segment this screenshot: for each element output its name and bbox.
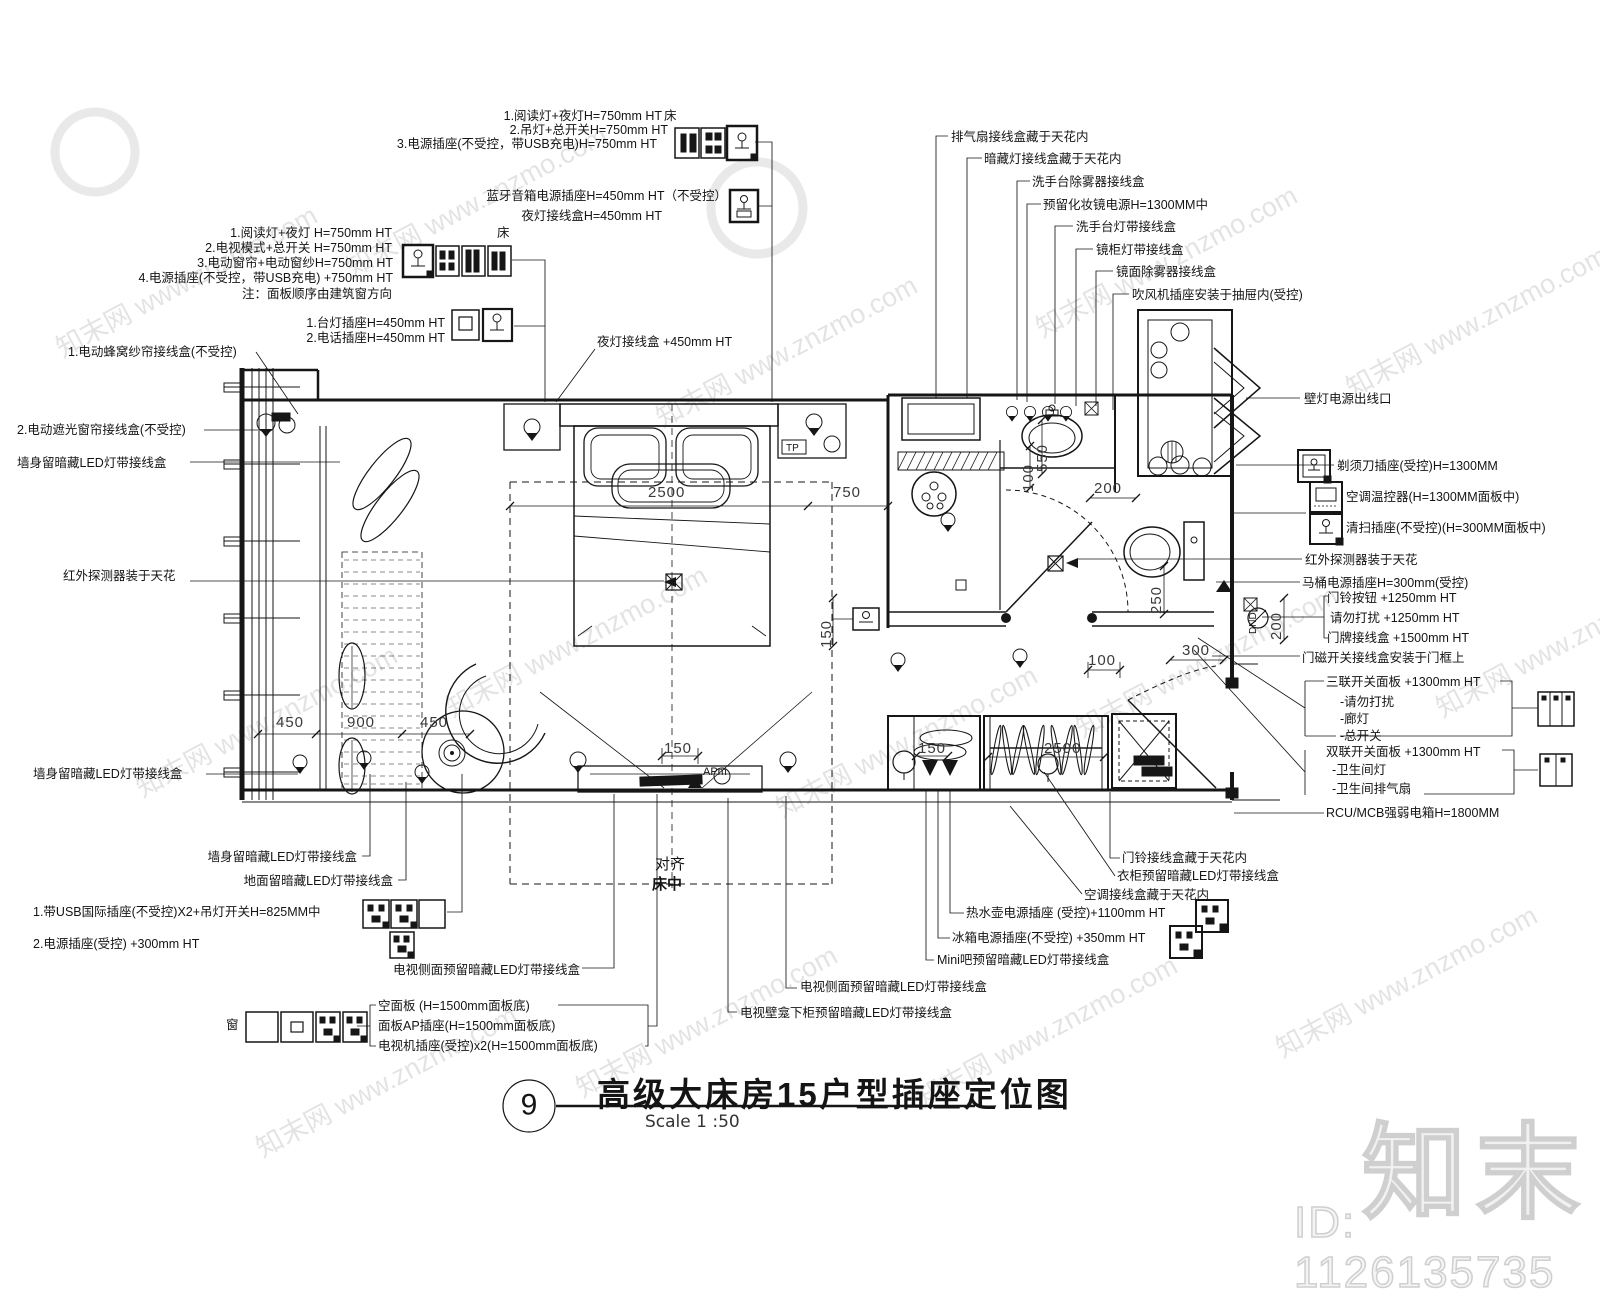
drawing-title: 高级大床房15户型插座定位图 xyxy=(597,1068,1072,1116)
label-curtain-motor: 3.电动窗帘+电动窗纱H=750mm HT xyxy=(197,256,393,270)
label-ts-master: -总开关 xyxy=(1340,729,1382,743)
luggage-rack xyxy=(1112,714,1176,788)
dim-win-a: 450 xyxy=(276,714,304,731)
label-mirror-cabinet: 镜柜灯带接线盒 xyxy=(1096,243,1184,257)
bedside-socket-150 xyxy=(833,608,879,630)
dim-bed-width: 2500 xyxy=(648,484,685,501)
dimension-lines xyxy=(254,416,1288,764)
dim-win-c: 450 xyxy=(420,714,448,731)
drawing-scale: Scale 1 :50 xyxy=(645,1112,740,1132)
label-phone-socket: 2.电话插座H=450mm HT xyxy=(306,331,445,345)
hatched-wall xyxy=(898,452,1004,470)
walls xyxy=(224,368,1280,802)
dim-entry: 200 xyxy=(1268,612,1285,640)
socket-trio-window-wall xyxy=(363,900,445,958)
fridge-socket-icon xyxy=(1170,926,1202,958)
label-tv-niche-led: 电视壁龛下柜预留暗藏LED灯带接线盒 xyxy=(740,1006,952,1020)
label-rcu: RCU/MCB强弱电箱H=1800MM xyxy=(1326,806,1499,820)
wall-light-icons xyxy=(257,402,1098,784)
armchair xyxy=(446,664,545,763)
vanity-cabinet xyxy=(1138,310,1232,476)
label-window: 窗 xyxy=(226,1018,239,1032)
dim-win-b: 900 xyxy=(347,714,375,731)
label-double-switch: 双联开关面板 +1300mm HT xyxy=(1326,745,1481,759)
label-nightlight-450: 夜灯接线盒 +450mm HT xyxy=(597,335,732,349)
dim-basin: 200 xyxy=(1094,480,1122,497)
dim-basin-s: 100 xyxy=(1020,464,1037,492)
label-mirror-defogger: 镜面除雾器接线盒 xyxy=(1116,265,1216,279)
dim-bed-side: 750 xyxy=(833,484,861,501)
label-exhaust-fan: 排气扇接线盒藏于天花内 xyxy=(951,130,1089,144)
label-doorbell-button: 门铃按钮 +1250mm HT xyxy=(1327,591,1457,605)
label-bed-center: 床中 xyxy=(652,876,682,893)
folding-door-arrows xyxy=(1214,348,1260,474)
label-ts-corridor: -廊灯 xyxy=(1340,712,1369,726)
socket-row-window xyxy=(246,1012,367,1042)
label-honeycomb-shade: 1.电动蜂窝纱帘接线盒(不受控) xyxy=(68,345,237,359)
dim-wardrobe: 2500 xyxy=(1044,740,1081,757)
label-usb-intl: 1.带USB国际插座(不受控)X2+吊灯开关H=825MM中 xyxy=(33,905,321,919)
label-thermostat: 空调温控器(H=1300MM面板中) xyxy=(1346,490,1519,504)
bluetooth-socket-icon xyxy=(730,190,758,222)
interior-window xyxy=(902,398,980,440)
label-ir-right: 红外探测器装于天花 xyxy=(1305,553,1418,567)
label-bed-1: 床 xyxy=(664,109,677,123)
toilet xyxy=(1124,522,1232,592)
dim-door-a: 100 xyxy=(1088,652,1116,669)
label-bt-speaker: 蓝牙音箱电源插座H=450mm HT（不受控） xyxy=(486,189,727,203)
label-table-lamp: 1.台灯插座H=450mm HT xyxy=(306,316,445,330)
label-tv-mode: 2.电视模式+总开关 H=750mm HT xyxy=(205,241,392,255)
label-toilet-socket: 马桶电源插座H=300mm(受控) xyxy=(1302,576,1468,590)
label-ap-panel: 面板AP插座(H=1500mm面板底) xyxy=(378,1019,555,1033)
label-door-magnet: 门磁开关接线盒安装于门框上 xyxy=(1302,651,1465,665)
thermostat-icon xyxy=(1310,482,1342,512)
label-doorplate: 门牌接线盒 +1500mm HT xyxy=(1327,631,1469,645)
label-tv-side-led-r: 电视侧面预留暗藏LED灯带接线盒 xyxy=(800,980,987,994)
dim-toilet: 250 xyxy=(1148,586,1165,614)
label-ts-dnd: -请勿打扰 xyxy=(1340,695,1394,709)
label-usb-socket-2: 4.电源插座(不受控，带USB充电) +750mm HT xyxy=(138,271,393,285)
panel-group-lamp-phone xyxy=(452,309,512,341)
label-blackout-curtain: 2.电动遮光窗帘接线盒(不受控) xyxy=(17,423,186,437)
label-tv-socket: 电视机插座(受控)x2(H=1500mm面板底) xyxy=(378,1039,598,1053)
label-shaver-socket: 剃须刀插座(受控)H=1300MM xyxy=(1337,459,1498,473)
label-reading-light-2: 1.阅读灯+夜灯 H=750mm HT xyxy=(230,226,392,240)
label-basin-led: 洗手台灯带接线盒 xyxy=(1076,220,1176,234)
bathroom-door xyxy=(1006,490,1128,612)
plan-text-tp: TP xyxy=(786,443,799,454)
panel-group-bedside xyxy=(403,245,511,277)
label-ds-bath-fan: -卫生间排气扇 xyxy=(1332,782,1411,796)
label-triple-switch: 三联开关面板 +1300mm HT xyxy=(1326,675,1481,689)
shaver-socket-icon xyxy=(1298,450,1331,483)
label-wall-led-1: 墙身留暗藏LED灯带接线盒 xyxy=(17,456,166,470)
watermark-logo-circle xyxy=(55,112,803,254)
label-concealed-light: 暗藏灯接线盒藏于天花内 xyxy=(984,152,1122,166)
label-ds-bath-light: -卫生间灯 xyxy=(1332,763,1386,777)
label-basin-defogger: 洗手台除雾器接线盒 xyxy=(1032,175,1145,189)
dim-minibar: 150 xyxy=(918,740,946,757)
label-ir-left: 红外探测器装于天花 xyxy=(63,569,176,583)
label-pendant-switch: 2.吊灯+总开关H=750mm HT xyxy=(510,123,668,137)
label-fridge-socket: 冰箱电源插座(不受控) +350mm HT xyxy=(952,931,1145,945)
label-wardrobe-led: 衣柜预留暗藏LED灯带接线盒 xyxy=(1117,869,1279,883)
curtain-track xyxy=(320,426,326,790)
label-minibar-led: Mini吧预留暗藏LED灯带接线盒 xyxy=(937,953,1109,967)
dim-tv: 150 xyxy=(664,740,692,757)
label-wall-led-3: 墙身留暗藏LED灯带接线盒 xyxy=(208,850,357,864)
label-bed-2: 床 xyxy=(497,226,510,240)
label-hairdryer: 吹风机插座安装于抽屉内(受控) xyxy=(1132,288,1303,302)
ir-detector-bedroom xyxy=(664,574,682,590)
label-blank-panel: 空面板 (H=1500mm面板底) xyxy=(378,999,530,1013)
rug xyxy=(342,552,422,790)
drawing-number: 9 xyxy=(521,1088,538,1122)
bed xyxy=(560,404,778,646)
label-reading-light-1: 1.阅读灯+夜灯H=750mm HT xyxy=(504,109,662,123)
shower xyxy=(912,440,1000,610)
label-wall-led-2: 墙身留暗藏LED灯带接线盒 xyxy=(33,767,182,781)
plan-text-apm: APm xyxy=(703,766,727,778)
dim-door-b: 300 xyxy=(1182,642,1210,659)
label-ac-box: 空调接线盒藏于天花内 xyxy=(1084,888,1209,902)
label-tv-side-led-l: 电视侧面预留暗藏LED灯带接线盒 xyxy=(393,963,580,977)
plan-text-dnd: DND xyxy=(1248,612,1259,634)
label-wall-lamp-outlet: 壁灯电源出线口 xyxy=(1304,392,1392,406)
dim-bed-gap: 150 xyxy=(818,620,835,648)
cleaning-socket-icon xyxy=(1310,514,1343,545)
double-switch-icon xyxy=(1540,754,1572,786)
bench-cushions xyxy=(339,431,427,794)
nightstand-left xyxy=(504,404,560,450)
label-kettle-socket: 热水壶电源插座 (受控)+1100mm HT xyxy=(966,906,1165,920)
label-cleaning-socket: 清扫插座(不受控)(H=300MM面板中) xyxy=(1346,521,1546,535)
cad-sheet: { "watermark": { "site_text": "知末网 www.z… xyxy=(0,0,1600,1280)
label-nightlight-box: 夜灯接线盒H=450mm HT xyxy=(521,209,662,223)
label-usb-socket-1: 3.电源插座(不受控，带USB充电)H=750mm HT xyxy=(397,137,657,151)
triple-switch-icon xyxy=(1538,692,1574,726)
panel-group-top xyxy=(675,126,757,160)
label-floor-led: 地面留暗藏LED灯带接线盒 xyxy=(244,874,393,888)
label-align: 对齐 xyxy=(655,856,685,873)
kettle-socket-icon xyxy=(1196,900,1228,932)
label-power-300: 2.电源插座(受控) +300mm HT xyxy=(33,937,199,951)
label-makeup-mirror: 预留化妆镜电源H=1300MM中 xyxy=(1043,198,1208,212)
label-doorbell-box: 门铃接线盒藏于天花内 xyxy=(1122,851,1247,865)
label-panel-order-note: 注：面板顺序由建筑窗方向 xyxy=(242,287,392,301)
label-dnd: 请勿打扰 +1250mm HT xyxy=(1330,611,1460,625)
